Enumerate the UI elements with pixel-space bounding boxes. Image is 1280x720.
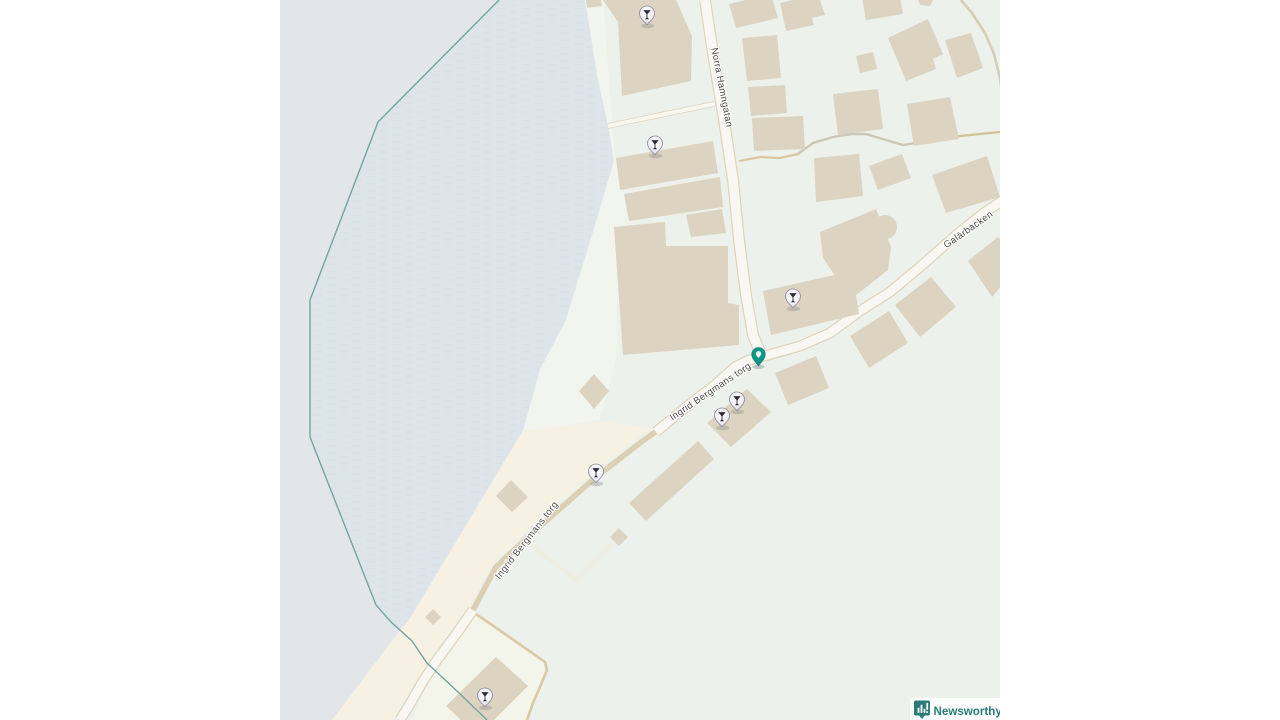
svg-text:Newsworthy: Newsworthy — [934, 705, 1003, 718]
